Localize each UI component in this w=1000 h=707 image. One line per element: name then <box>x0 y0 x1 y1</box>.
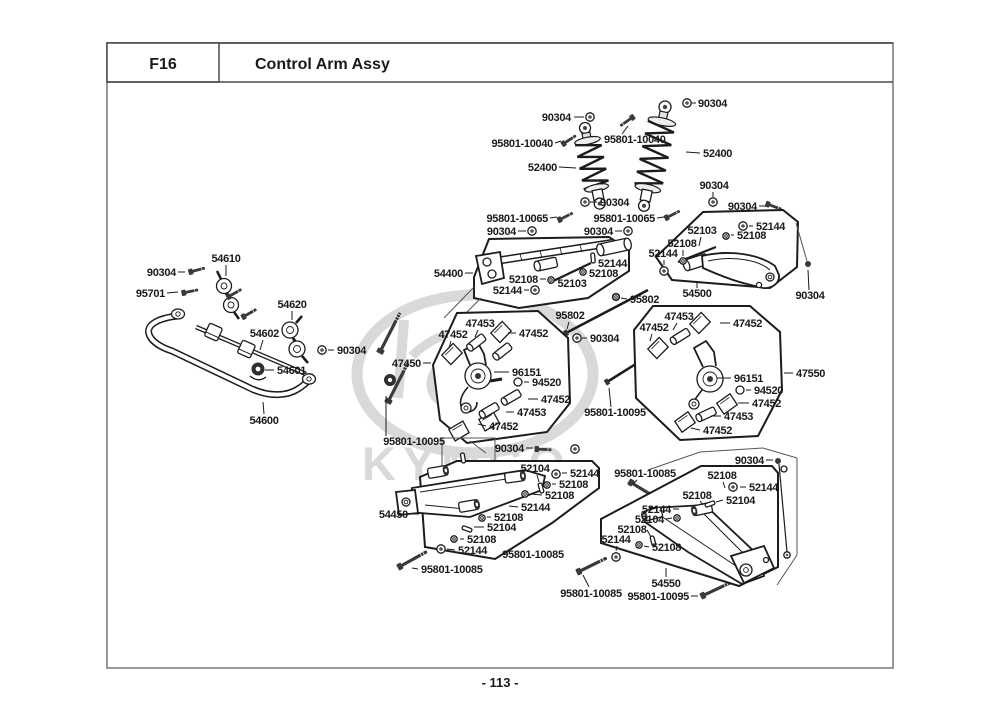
part-label-47452: 47452 <box>438 329 467 341</box>
diagram-skeleton <box>149 98 811 599</box>
nut-fastener <box>581 198 589 206</box>
part-label-95801-10085: 95801-10085 <box>614 468 676 480</box>
part-label-54601: 54601 <box>277 365 306 377</box>
part-label-52400: 52400 <box>703 148 732 160</box>
part-label-47452: 47452 <box>703 425 732 437</box>
part-label-47453: 47453 <box>664 311 693 323</box>
part-label-47452: 47452 <box>752 398 781 410</box>
part-label-47453: 47453 <box>724 411 753 423</box>
washer-fastener <box>548 277 554 283</box>
leader-line <box>583 575 589 587</box>
washer-fastener <box>680 258 686 264</box>
part-label-95801-10095: 95801-10095 <box>383 436 445 448</box>
part-label-52104: 52104 <box>487 522 517 534</box>
part-label-47452: 47452 <box>519 328 548 340</box>
part-label-95801-10040: 95801-10040 <box>491 138 553 150</box>
leader-line <box>609 388 611 407</box>
washer-fastener <box>636 542 642 548</box>
leader-line <box>555 141 561 143</box>
part-label-54450: 54450 <box>379 509 408 521</box>
part-label-95802: 95802 <box>630 294 659 306</box>
part-label-90304: 90304 <box>590 333 620 345</box>
nut-fastener <box>531 286 539 294</box>
part-label-47452: 47452 <box>639 322 668 334</box>
part-label-47550: 47550 <box>796 368 825 380</box>
part-label-52144: 52144 <box>749 482 779 494</box>
part-label-47452: 47452 <box>733 318 762 330</box>
part-label-95701: 95701 <box>136 288 165 300</box>
part-label-95801-10085: 95801-10085 <box>421 564 483 576</box>
part-label-54400: 54400 <box>434 268 463 280</box>
part-label-90304: 90304 <box>735 455 765 467</box>
part-label-95801-10085: 95801-10085 <box>560 588 622 600</box>
part-label-52108: 52108 <box>589 268 618 280</box>
part-label-47452: 47452 <box>541 394 570 406</box>
section-code: F16 <box>149 56 177 73</box>
washer-fastener <box>580 269 586 275</box>
part-label-96151: 96151 <box>734 373 763 385</box>
part-label-90304: 90304 <box>487 226 517 238</box>
page-title: Control Arm Assy <box>255 56 390 73</box>
nut-fastener <box>437 545 445 553</box>
nut-fastener <box>586 113 594 121</box>
nut-fastener <box>624 227 632 235</box>
part-label-95801-10065: 95801-10065 <box>593 213 655 225</box>
nut-fastener <box>709 198 717 206</box>
part-label-52104: 52104 <box>520 463 550 475</box>
washer-fastener <box>674 515 680 521</box>
part-label-54610: 54610 <box>211 253 240 265</box>
part-label-52108: 52108 <box>545 490 574 502</box>
part-label-54620: 54620 <box>277 299 306 311</box>
leader-line <box>622 126 628 134</box>
part-label-94520: 94520 <box>754 385 783 397</box>
nut-fastener <box>683 99 691 107</box>
pin-fastener <box>591 253 596 263</box>
part-label-47453: 47453 <box>517 407 546 419</box>
leader-line <box>550 217 557 218</box>
part-label-52108: 52108 <box>682 490 711 502</box>
nut-fastener <box>552 470 560 478</box>
washer-fastener <box>544 482 550 488</box>
leader-line <box>412 568 418 569</box>
part-label-90304: 90304 <box>337 345 367 357</box>
part-label-95801-10095: 95801-10095 <box>584 407 646 419</box>
washer-fastener <box>723 233 729 239</box>
washer-fastener <box>479 515 485 521</box>
part-label-94520: 94520 <box>532 377 561 389</box>
leader-line <box>559 167 576 168</box>
washer-fastener <box>613 294 619 300</box>
leader-line <box>260 340 263 350</box>
part-label-90304: 90304 <box>795 290 825 302</box>
part-label-47453: 47453 <box>465 318 494 330</box>
part-label-52144: 52144 <box>521 502 551 514</box>
part-label-52144: 52144 <box>458 545 488 557</box>
part-label-90304: 90304 <box>147 267 177 279</box>
part-label-52103: 52103 <box>557 278 586 290</box>
part-label-90304: 90304 <box>699 180 729 192</box>
leader-line <box>808 270 809 290</box>
washer-fastener <box>451 536 457 542</box>
part-label-52400: 52400 <box>528 162 557 174</box>
leader-line <box>167 292 178 293</box>
nut-fastener <box>612 553 620 561</box>
washer-fastener <box>522 491 528 497</box>
part-label-52108: 52108 <box>707 470 736 482</box>
part-label-90304: 90304 <box>728 201 758 213</box>
part-label-47452: 47452 <box>489 421 518 433</box>
part-label-90304: 90304 <box>698 98 728 110</box>
part-label-52144: 52144 <box>601 534 631 546</box>
nut-fastener <box>729 483 737 491</box>
bolt-head <box>805 261 811 267</box>
nut-fastener <box>660 267 668 275</box>
part-label-52103: 52103 <box>687 225 716 237</box>
part-label-95801-10040: 95801-10040 <box>604 134 666 146</box>
leader-line <box>621 298 627 299</box>
catalog-page: KYMCO F16 Control Arm Assy - 113 - <box>0 0 1000 707</box>
shock-absorber-right <box>629 98 680 214</box>
part-label-95801-10085: 95801-10085 <box>502 549 564 561</box>
nut-fastener <box>571 445 579 453</box>
part-label-52108: 52108 <box>652 542 681 554</box>
leader-line <box>657 217 664 218</box>
part-label-95801-10095: 95801-10095 <box>627 591 689 603</box>
part-label-54602: 54602 <box>250 328 279 340</box>
part-label-90304: 90304 <box>600 197 630 209</box>
parts-diagram: KYMCO F16 Control Arm Assy - 113 - <box>0 0 1000 707</box>
page-number: - 113 - <box>482 675 519 690</box>
nut-fastener <box>739 222 747 230</box>
part-label-52144: 52144 <box>648 248 678 260</box>
part-label-90304: 90304 <box>542 112 572 124</box>
part-label-52108: 52108 <box>737 230 766 242</box>
part-label-47450: 47450 <box>392 358 421 370</box>
part-label-90304: 90304 <box>495 443 525 455</box>
nut-fastener <box>573 334 581 342</box>
stabilizer-link-right <box>282 316 308 363</box>
part-label-52104: 52104 <box>726 495 756 507</box>
part-label-54500: 54500 <box>682 288 711 300</box>
part-label-95802: 95802 <box>555 310 584 322</box>
part-label-95801-10065: 95801-10065 <box>486 213 548 225</box>
part-label-54550: 54550 <box>651 578 680 590</box>
part-label-54600: 54600 <box>249 415 278 427</box>
part-label-52144: 52144 <box>493 285 523 297</box>
leader-line <box>263 402 264 414</box>
nut-fastener <box>528 227 536 235</box>
part-label-90304: 90304 <box>584 226 614 238</box>
bar-clamp <box>237 340 255 358</box>
nut-fastener <box>318 346 326 354</box>
leader-line <box>686 152 700 153</box>
